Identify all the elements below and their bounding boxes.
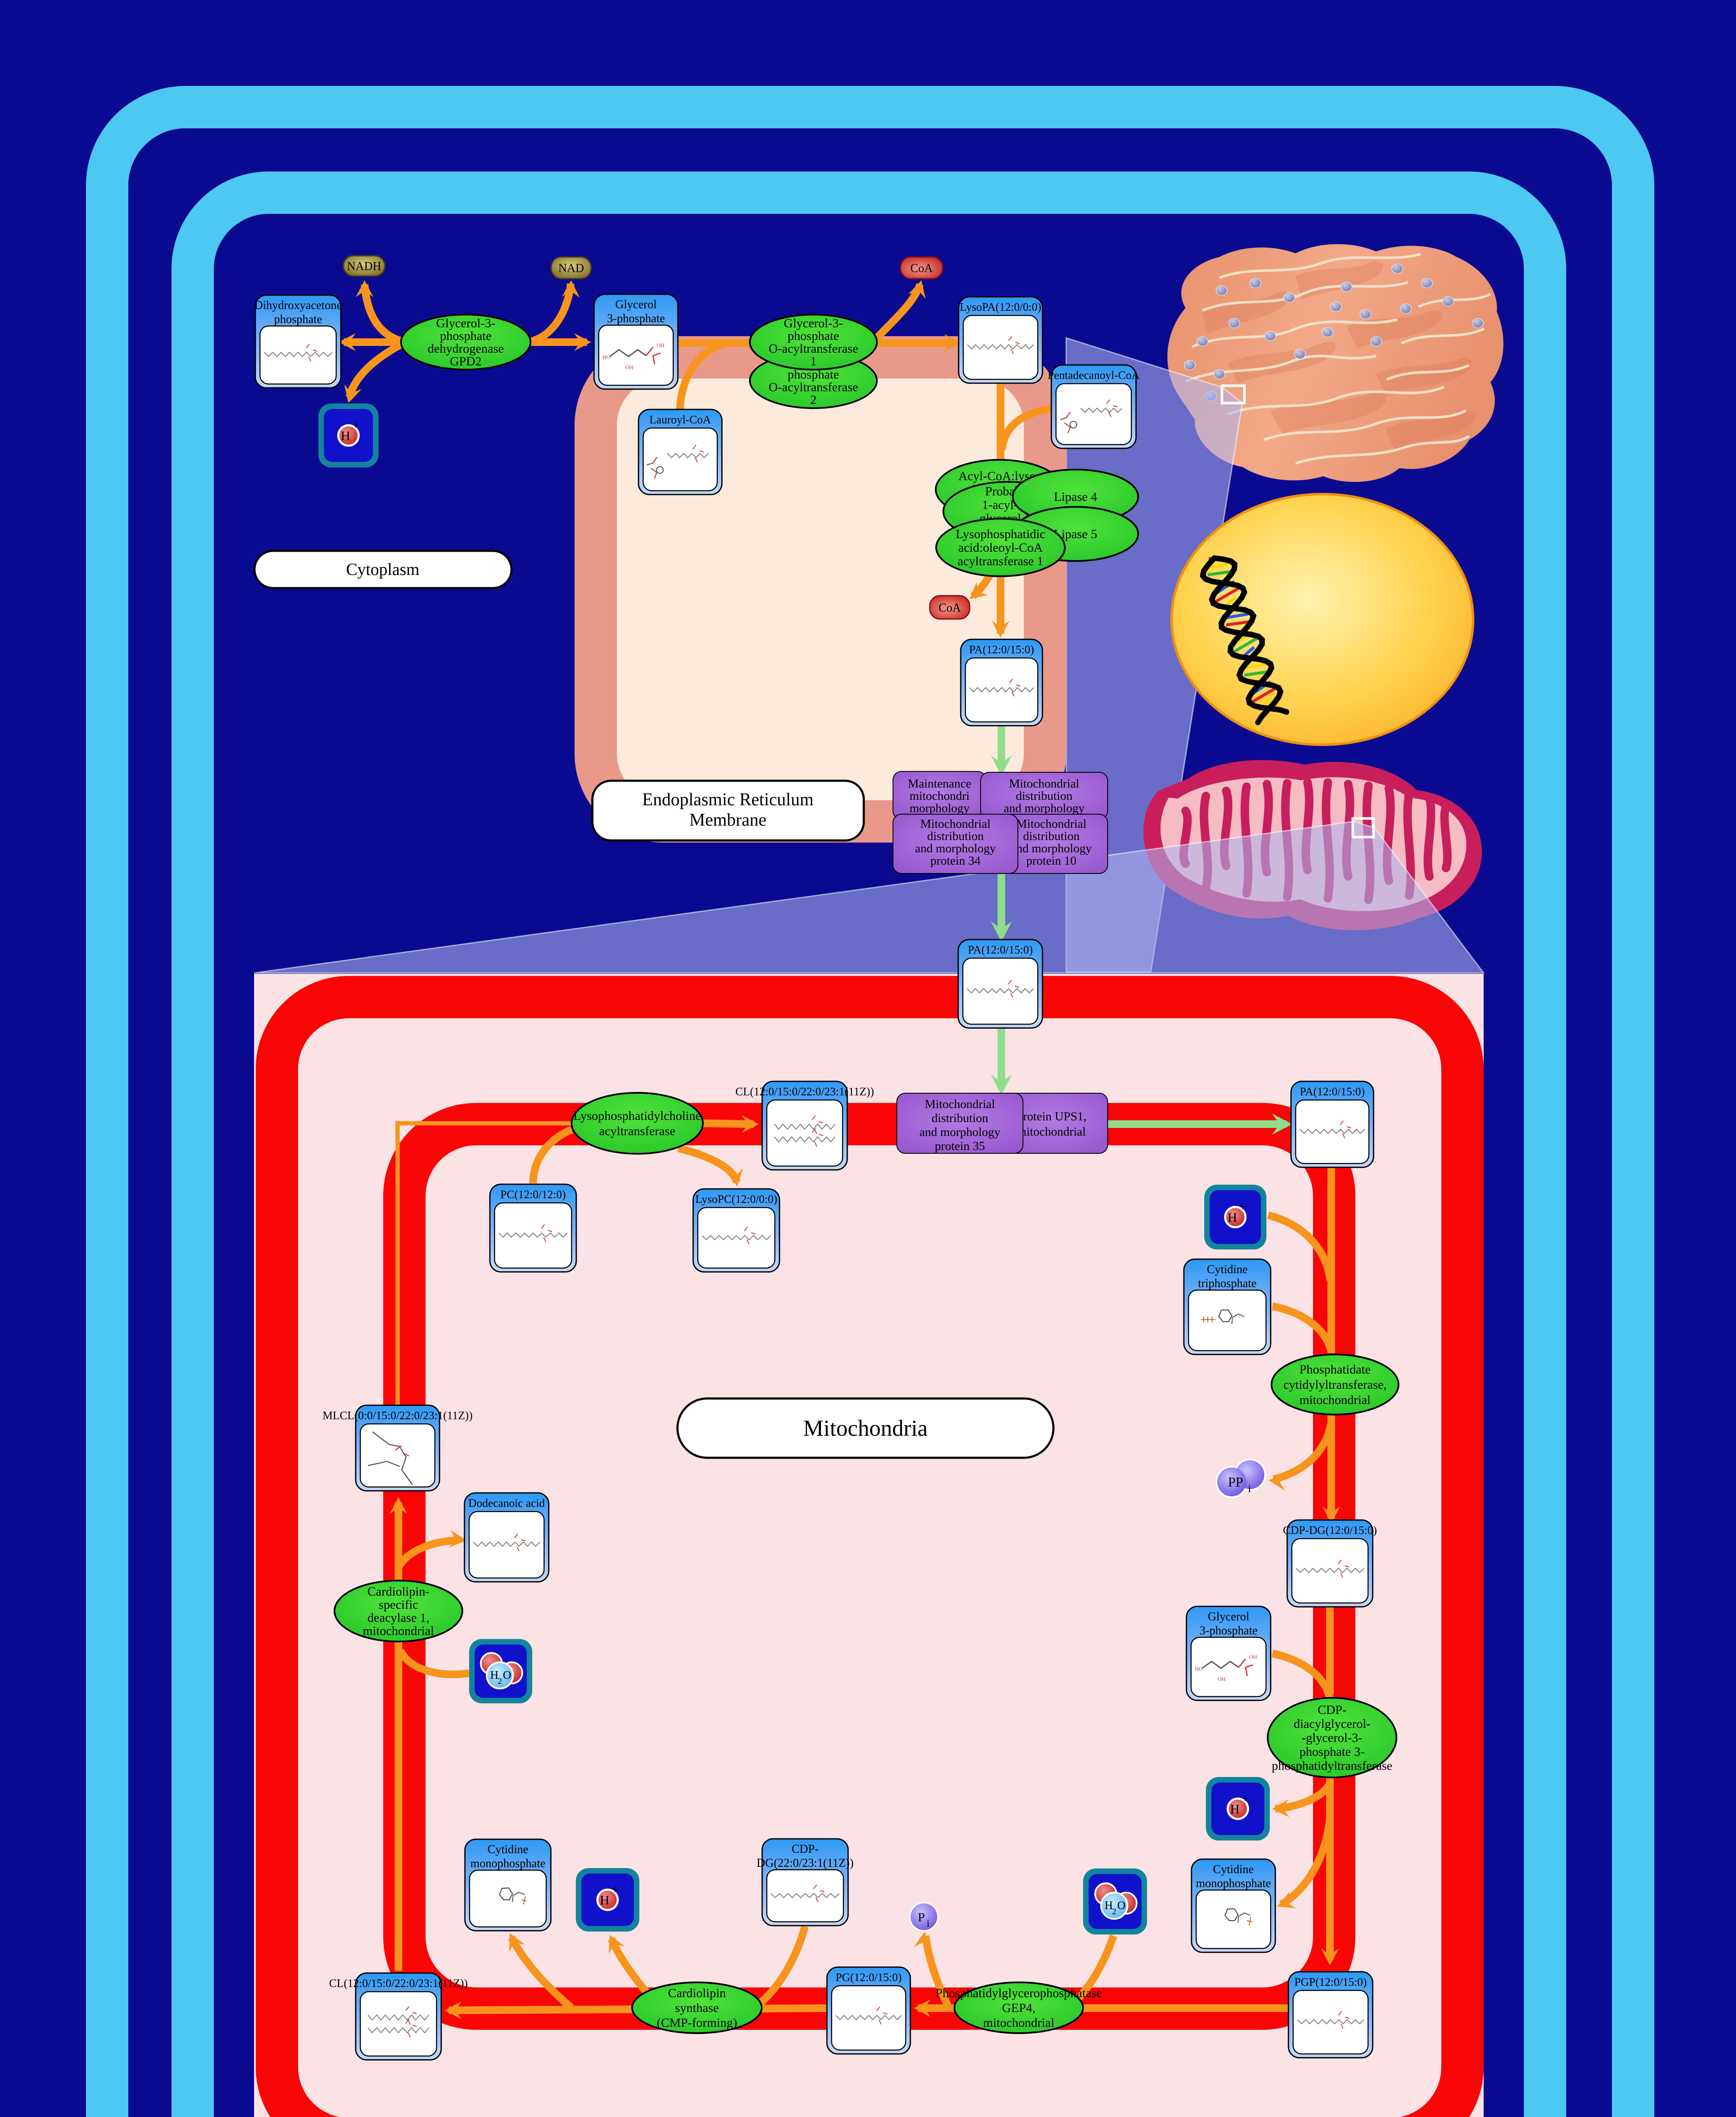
svg-text:HO: HO xyxy=(1195,1666,1203,1672)
svg-text:and morphology: and morphology xyxy=(1004,801,1085,815)
svg-text:phosphate: phosphate xyxy=(274,313,322,326)
svg-text:triphosphate: triphosphate xyxy=(1198,1277,1256,1290)
svg-text:specific: specific xyxy=(379,1598,418,1612)
svg-text:cytidylyltransferase,: cytidylyltransferase, xyxy=(1283,1378,1387,1392)
svg-text:i: i xyxy=(1248,1483,1251,1495)
svg-text:PA(12:0/15:0): PA(12:0/15:0) xyxy=(1300,1085,1365,1098)
svg-text:+: + xyxy=(1241,1792,1248,1805)
svg-text:distribution: distribution xyxy=(927,829,984,843)
svg-text:1: 1 xyxy=(810,354,817,368)
svg-text:H: H xyxy=(1105,1899,1113,1912)
svg-text:3-phosphate: 3-phosphate xyxy=(607,312,665,325)
svg-text:diacylglycerol-: diacylglycerol- xyxy=(1294,1717,1371,1731)
svg-text:PC(12:0/12:0): PC(12:0/12:0) xyxy=(500,1188,566,1201)
svg-text:Glycerol: Glycerol xyxy=(1208,1610,1249,1623)
svg-text:i: i xyxy=(927,1918,930,1929)
svg-text:OH: OH xyxy=(625,364,633,370)
svg-text:MLCL(0:0/15:0/22:0/23:1(11Z)): MLCL(0:0/15:0/22:0/23:1(11Z)) xyxy=(323,1409,473,1422)
svg-text:distribution: distribution xyxy=(1023,829,1080,843)
svg-text:PG(12:0/15:0): PG(12:0/15:0) xyxy=(835,1971,901,1984)
svg-text:and morphology: and morphology xyxy=(1011,842,1092,855)
svg-text:2: 2 xyxy=(498,1677,502,1686)
svg-text:Mitochondrial: Mitochondrial xyxy=(925,1097,995,1111)
svg-text:Phosphatidylglycerophosphatase: Phosphatidylglycerophosphatase xyxy=(935,1986,1102,2000)
svg-text:Cardiolipin: Cardiolipin xyxy=(668,1986,726,2000)
svg-text:Maintenance: Maintenance xyxy=(908,777,971,790)
svg-text:3-phosphate: 3-phosphate xyxy=(1200,1624,1258,1637)
svg-text:mitochondrial: mitochondrial xyxy=(983,2016,1054,2030)
svg-text:LysoPC(12:0/0:0): LysoPC(12:0/0:0) xyxy=(695,1193,777,1205)
svg-text:Mitochondrial: Mitochondrial xyxy=(921,817,991,831)
svg-text:Mitochondrial: Mitochondrial xyxy=(1009,777,1079,790)
svg-text:protein 34: protein 34 xyxy=(930,854,981,868)
svg-text:mitochondrial: mitochondrial xyxy=(363,1624,434,1638)
svg-text:Lysophosphatidylcholine: Lysophosphatidylcholine xyxy=(573,1109,701,1123)
svg-text:CDP-: CDP- xyxy=(792,1843,819,1856)
svg-text:synthase: synthase xyxy=(675,2001,719,2015)
svg-text:H: H xyxy=(600,1893,609,1907)
svg-text:deacylase 1,: deacylase 1, xyxy=(368,1611,430,1625)
svg-text:HO: HO xyxy=(603,354,611,360)
svg-text:phosphate: phosphate xyxy=(788,329,839,343)
svg-text:phosphatidyltransferase: phosphatidyltransferase xyxy=(1272,1759,1393,1773)
svg-text:Lysophosphatidic: Lysophosphatidic xyxy=(956,527,1045,541)
svg-text:mitochondrial: mitochondrial xyxy=(1299,1393,1371,1407)
svg-text:Lauroyl-CoA: Lauroyl-CoA xyxy=(650,413,711,426)
svg-text:CDP-: CDP- xyxy=(1318,1703,1346,1717)
svg-text:OH: OH xyxy=(657,342,665,348)
svg-text:Dodecanoic acid: Dodecanoic acid xyxy=(468,1497,545,1509)
svg-text:morphology: morphology xyxy=(909,801,970,815)
svg-text:PA(12:0/15:0): PA(12:0/15:0) xyxy=(968,943,1033,956)
svg-text:Protein UPS1,: Protein UPS1, xyxy=(1016,1110,1086,1123)
svg-text:PGP(12:0/15:0): PGP(12:0/15:0) xyxy=(1294,1976,1367,1988)
svg-text:(CMP-forming): (CMP-forming) xyxy=(657,2016,737,2030)
svg-text:Cardiolipin-: Cardiolipin- xyxy=(368,1585,430,1599)
svg-text:Cytidine: Cytidine xyxy=(1213,1863,1254,1876)
svg-text:CDP-DG(12:0/15:0): CDP-DG(12:0/15:0) xyxy=(1283,1524,1377,1537)
svg-text:NADH: NADH xyxy=(347,260,381,273)
svg-text:GPD2: GPD2 xyxy=(450,354,481,368)
svg-text:CL(12:0/15:0/22:0/23:1(11Z)): CL(12:0/15:0/22:0/23:1(11Z)) xyxy=(329,1977,467,1990)
svg-text:acyltransferase 1: acyltransferase 1 xyxy=(958,554,1043,568)
svg-text:acyltransferase: acyltransferase xyxy=(599,1124,675,1138)
svg-text:LysoPA(12:0/0:0): LysoPA(12:0/0:0) xyxy=(960,301,1042,313)
svg-text:2: 2 xyxy=(1112,1907,1117,1916)
svg-text:protein 10: protein 10 xyxy=(1026,854,1076,868)
svg-text:2: 2 xyxy=(810,393,817,407)
svg-text:P: P xyxy=(918,1910,925,1924)
svg-text:Dihydroxyacetone: Dihydroxyacetone xyxy=(254,299,342,312)
svg-text:phosphate: phosphate xyxy=(440,329,492,343)
svg-text:distribution: distribution xyxy=(1016,789,1073,803)
svg-text:CoA: CoA xyxy=(910,262,933,275)
svg-text:protein 35: protein 35 xyxy=(935,1139,985,1153)
svg-text:PA(12:0/15:0): PA(12:0/15:0) xyxy=(969,643,1034,656)
svg-text:mitochondri: mitochondri xyxy=(909,789,970,803)
svg-text:Phosphatidate: Phosphatidate xyxy=(1299,1363,1371,1376)
svg-text:Endoplasmic Reticulum: Endoplasmic Reticulum xyxy=(642,790,814,810)
svg-text:PP: PP xyxy=(1228,1474,1243,1490)
svg-text:Mitochondrial: Mitochondrial xyxy=(1016,817,1086,831)
svg-text:+: + xyxy=(1239,1200,1246,1214)
svg-text:DG(22:0/23:1(11Z)): DG(22:0/23:1(11Z)) xyxy=(757,1857,854,1870)
svg-text:Glycerol-3-: Glycerol-3- xyxy=(436,316,495,330)
svg-text:Mitochondria: Mitochondria xyxy=(803,1415,928,1441)
svg-text:Cytidine: Cytidine xyxy=(487,1843,528,1856)
svg-text:OH: OH xyxy=(1218,1676,1226,1682)
svg-text:Glycerol-3-: Glycerol-3- xyxy=(784,316,843,330)
svg-text:and morphology: and morphology xyxy=(915,842,996,855)
svg-text:Cytidine: Cytidine xyxy=(1207,1263,1247,1276)
svg-text:Glycerol: Glycerol xyxy=(615,298,657,311)
svg-text:mitochondrial: mitochondrial xyxy=(1017,1125,1086,1139)
svg-text:phosphate 3-: phosphate 3- xyxy=(1299,1745,1365,1759)
svg-text:H: H xyxy=(490,1669,499,1681)
svg-text:CoA: CoA xyxy=(939,602,962,615)
svg-text:monophosphate: monophosphate xyxy=(470,1857,545,1870)
svg-text:+: + xyxy=(611,1883,618,1896)
svg-text:monophosphate: monophosphate xyxy=(1196,1877,1271,1890)
svg-text:O: O xyxy=(1117,1899,1126,1912)
svg-text:distribution: distribution xyxy=(932,1111,988,1125)
svg-text:Pentadecanoyl-CoA: Pentadecanoyl-CoA xyxy=(1048,369,1140,381)
svg-text:H: H xyxy=(1227,1210,1237,1225)
svg-text:+: + xyxy=(352,419,359,432)
svg-text:Cytoplasm: Cytoplasm xyxy=(346,560,419,579)
svg-text:dehydrogenase: dehydrogenase xyxy=(428,342,504,356)
svg-text:H: H xyxy=(1230,1802,1239,1816)
svg-text:O-acyltransferase: O-acyltransferase xyxy=(768,380,858,394)
svg-text:Membrane: Membrane xyxy=(689,810,766,830)
svg-text:Lipase 4: Lipase 4 xyxy=(1054,490,1097,504)
svg-text:GEP4,: GEP4, xyxy=(1002,2001,1035,2015)
svg-text:O: O xyxy=(503,1669,511,1681)
svg-text:O-acyltransferase: O-acyltransferase xyxy=(768,342,858,356)
svg-text:and morphology: and morphology xyxy=(920,1125,1001,1139)
svg-text:NAD: NAD xyxy=(558,262,584,275)
svg-text:OH: OH xyxy=(1249,1654,1257,1660)
svg-text:H: H xyxy=(341,428,350,443)
svg-text:-glycerol-3-: -glycerol-3- xyxy=(1302,1731,1362,1745)
svg-text:acid:oleoyl-CoA: acid:oleoyl-CoA xyxy=(958,541,1043,555)
svg-text:CL(12:0/15:0/22:0/23:1(11Z)): CL(12:0/15:0/22:0/23:1(11Z)) xyxy=(735,1085,874,1098)
